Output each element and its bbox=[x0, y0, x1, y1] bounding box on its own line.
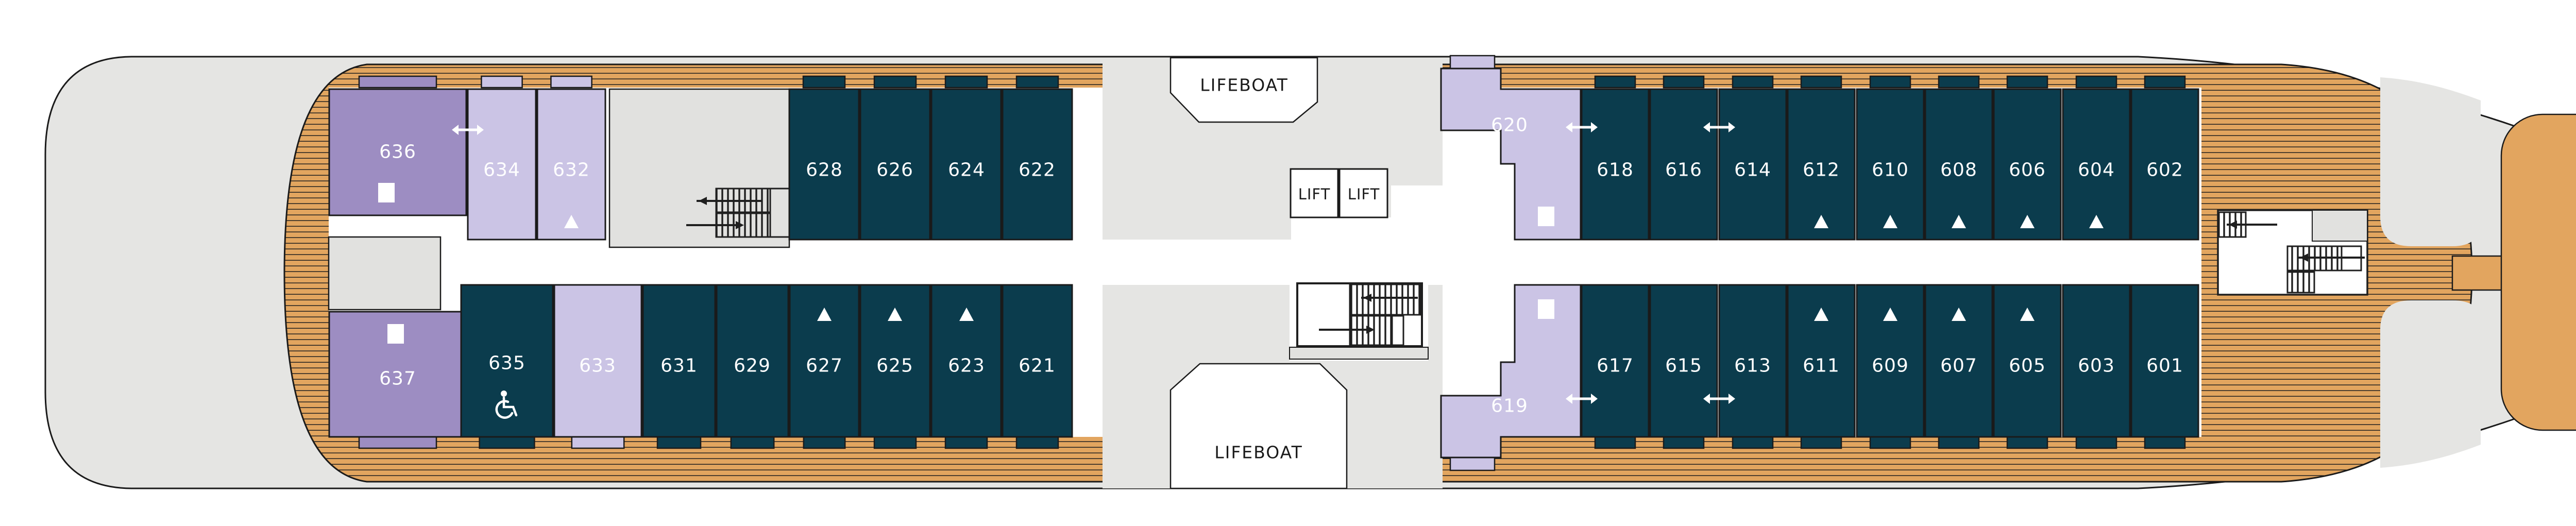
balcony bbox=[2076, 437, 2116, 448]
cabin-number: 619 bbox=[1491, 396, 1528, 417]
cabin-number: 601 bbox=[2146, 355, 2183, 377]
lift-right-label: LIFT bbox=[1348, 185, 1380, 203]
cabin-613[interactable]: 613 bbox=[1719, 285, 1786, 448]
balcony bbox=[551, 76, 591, 88]
balcony bbox=[1870, 437, 1910, 448]
cabin-616[interactable]: 616 bbox=[1650, 76, 1717, 240]
cabin-624[interactable]: 624 bbox=[931, 76, 1001, 240]
balcony bbox=[2007, 437, 2047, 448]
cabin-606[interactable]: 606 bbox=[1994, 76, 2061, 240]
balcony bbox=[1801, 437, 1841, 448]
cabin-611[interactable]: 611 bbox=[1788, 285, 1855, 448]
bow-stairs-icon bbox=[2218, 210, 2367, 295]
cabin-number: 621 bbox=[1019, 355, 1056, 377]
balcony bbox=[1450, 56, 1495, 69]
balcony bbox=[1939, 76, 1979, 88]
cabin-636[interactable]: 636 bbox=[329, 76, 466, 215]
cabin-627[interactable]: 627 bbox=[790, 285, 859, 448]
cabin-625[interactable]: 625 bbox=[860, 285, 930, 448]
cabin-number: 607 bbox=[1940, 355, 1977, 377]
cabin-632[interactable]: 632 bbox=[537, 76, 605, 240]
balcony bbox=[1016, 437, 1058, 448]
balcony bbox=[1939, 437, 1979, 448]
balcony bbox=[874, 76, 916, 88]
lifeboat-bottom-label: LIFEBOAT bbox=[1214, 443, 1303, 463]
cabin-number: 608 bbox=[1940, 160, 1977, 181]
sofa-bed-square-icon bbox=[1538, 207, 1554, 226]
cabin-number: 620 bbox=[1491, 115, 1528, 136]
balcony bbox=[1016, 76, 1058, 88]
cabin-number: 633 bbox=[579, 355, 616, 377]
cabin-number: 637 bbox=[379, 368, 416, 389]
cabin-number: 613 bbox=[1734, 355, 1771, 377]
cabin-number: 629 bbox=[734, 355, 771, 377]
cabin-637[interactable]: 637 bbox=[329, 312, 466, 448]
cabin-number: 606 bbox=[2009, 160, 2046, 181]
cabin-number: 624 bbox=[948, 160, 985, 181]
balcony bbox=[359, 76, 436, 88]
bow-mid-deck bbox=[2501, 114, 2576, 430]
cabin-628[interactable]: 628 bbox=[789, 76, 859, 240]
cabin-603[interactable]: 603 bbox=[2063, 285, 2130, 448]
cabin-614[interactable]: 614 bbox=[1719, 76, 1786, 240]
sofa-bed-square-icon bbox=[387, 324, 404, 344]
cabin-number: 611 bbox=[1803, 355, 1840, 377]
cabin-631[interactable]: 631 bbox=[643, 285, 715, 448]
cabin-number: 605 bbox=[2009, 355, 2046, 377]
cabin-635[interactable]: 635 bbox=[461, 285, 553, 448]
cabin-629[interactable]: 629 bbox=[717, 285, 788, 448]
cabin-601[interactable]: 601 bbox=[2131, 285, 2198, 448]
balcony bbox=[1870, 76, 1910, 88]
cabin-number: 635 bbox=[488, 353, 526, 374]
cabin-604[interactable]: 604 bbox=[2063, 76, 2130, 240]
cabin-610[interactable]: 610 bbox=[1857, 76, 1924, 240]
cabin-608[interactable]: 608 bbox=[1925, 76, 1992, 240]
sofa-bed-square-icon bbox=[1538, 299, 1554, 319]
lifeboat-recess-bottom bbox=[1171, 364, 1347, 488]
lifeboat-top-label: LIFEBOAT bbox=[1200, 75, 1289, 95]
cabin-number: 602 bbox=[2146, 160, 2183, 181]
central-stair-landing bbox=[1290, 347, 1428, 359]
balcony bbox=[572, 437, 624, 448]
central-stairs-icon bbox=[1297, 283, 1422, 346]
balcony bbox=[480, 437, 535, 448]
balcony bbox=[945, 437, 987, 448]
balcony bbox=[1664, 437, 1704, 448]
cabin-618[interactable]: 618 bbox=[1582, 76, 1649, 240]
cabin-number: 626 bbox=[876, 160, 913, 181]
cabin-number: 628 bbox=[806, 160, 843, 181]
cabin-number: 615 bbox=[1665, 355, 1702, 377]
balcony bbox=[1595, 76, 1635, 88]
cabin-number: 618 bbox=[1597, 160, 1634, 181]
cabin-607[interactable]: 607 bbox=[1925, 285, 1992, 448]
balcony bbox=[731, 437, 774, 448]
corridor-620-notch bbox=[1443, 130, 1502, 396]
aft-store-room bbox=[329, 237, 440, 310]
deck-plan: LIFEBOAT LIFEBOAT LIFT LIFT bbox=[0, 0, 2576, 526]
cabin-615[interactable]: 615 bbox=[1650, 285, 1717, 448]
cabin-621[interactable]: 621 bbox=[1003, 285, 1072, 448]
bow-pocket-bottom bbox=[2380, 300, 2481, 468]
cabin-number: 612 bbox=[1803, 160, 1840, 181]
balcony bbox=[2007, 76, 2047, 88]
balcony bbox=[481, 76, 522, 88]
balcony bbox=[945, 76, 987, 88]
cabin-626[interactable]: 626 bbox=[860, 76, 930, 240]
cabin-612[interactable]: 612 bbox=[1788, 76, 1855, 240]
cabin-number: 631 bbox=[660, 355, 698, 377]
cabin-634[interactable]: 634 bbox=[468, 76, 536, 240]
cabin-number: 603 bbox=[2078, 355, 2115, 377]
cabin-number: 623 bbox=[948, 355, 985, 377]
cabin-number: 604 bbox=[2078, 160, 2115, 181]
cabin-number: 627 bbox=[806, 355, 843, 377]
balcony bbox=[2076, 76, 2116, 88]
cabin-number: 636 bbox=[379, 142, 416, 163]
cabin-number: 632 bbox=[553, 160, 590, 181]
balcony bbox=[1595, 437, 1635, 448]
balcony bbox=[1801, 76, 1841, 88]
balcony bbox=[657, 437, 701, 448]
balcony bbox=[359, 437, 436, 448]
balcony bbox=[2145, 76, 2185, 88]
balcony bbox=[804, 437, 845, 448]
cabin-622[interactable]: 622 bbox=[1003, 76, 1072, 240]
cabin-633[interactable]: 633 bbox=[554, 285, 641, 448]
cabin-623[interactable]: 623 bbox=[931, 285, 1001, 448]
cabin-602[interactable]: 602 bbox=[2131, 76, 2198, 240]
cabin-number: 614 bbox=[1734, 160, 1771, 181]
sofa-bed-square-icon bbox=[378, 183, 395, 202]
balcony bbox=[803, 76, 845, 88]
balcony bbox=[2145, 437, 2185, 448]
cabin-number: 622 bbox=[1019, 160, 1056, 181]
cabin-number: 625 bbox=[876, 355, 913, 377]
balcony bbox=[1733, 437, 1773, 448]
cabin-609[interactable]: 609 bbox=[1857, 285, 1924, 448]
balcony bbox=[1733, 76, 1773, 88]
cabin-number: 617 bbox=[1597, 355, 1634, 377]
cabin-617[interactable]: 617 bbox=[1582, 285, 1649, 448]
balcony bbox=[874, 437, 916, 448]
cabin-number: 616 bbox=[1665, 160, 1702, 181]
cabin-number: 609 bbox=[1872, 355, 1909, 377]
cabin-number: 610 bbox=[1872, 160, 1909, 181]
cabin-number: 634 bbox=[483, 160, 520, 181]
cabin-605[interactable]: 605 bbox=[1994, 285, 2061, 448]
lift-left-label: LIFT bbox=[1298, 185, 1331, 203]
balcony bbox=[1664, 76, 1704, 88]
bow-pocket-top bbox=[2380, 77, 2481, 246]
balcony bbox=[1450, 457, 1495, 470]
